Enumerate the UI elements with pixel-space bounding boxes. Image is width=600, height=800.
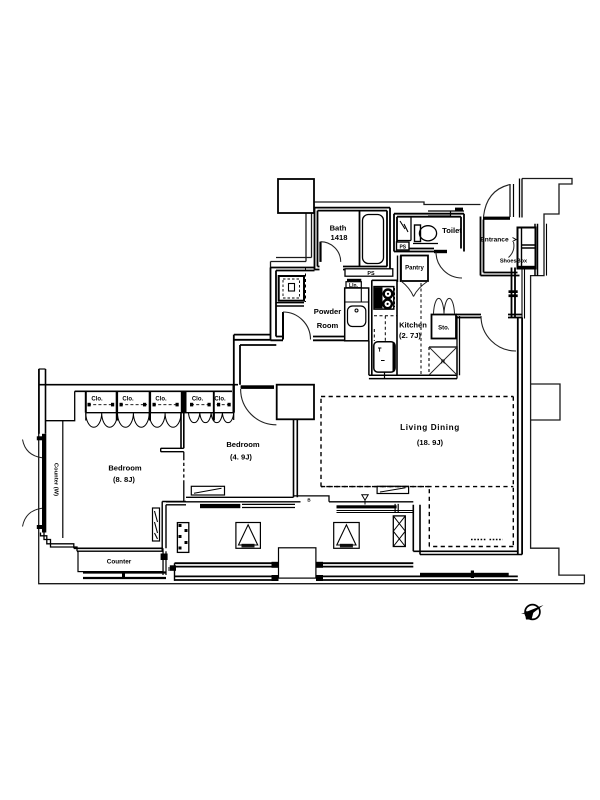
svg-text:Counter (W): Counter (W): [53, 463, 59, 496]
svg-text:Clo.: Clo.: [91, 397, 103, 403]
svg-text:Sto.: Sto.: [438, 326, 450, 332]
svg-text:Powder: Powder: [314, 307, 341, 316]
svg-text:(2. 7J): (2. 7J): [399, 331, 421, 340]
svg-text:1418: 1418: [331, 233, 348, 242]
svg-text:PS: PS: [399, 245, 406, 251]
svg-text:ShoesBox: ShoesBox: [500, 259, 528, 265]
svg-text:Clo.: Clo.: [192, 397, 204, 403]
svg-text:Kitchen: Kitchen: [399, 321, 427, 330]
svg-text:(8. 8J): (8. 8J): [113, 475, 135, 484]
svg-text:(18. 9J): (18. 9J): [417, 438, 444, 447]
svg-text:R: R: [441, 360, 445, 366]
svg-text:Room: Room: [317, 321, 339, 330]
svg-text:Entrance: Entrance: [480, 237, 509, 244]
svg-text:Bath: Bath: [330, 224, 347, 233]
svg-text:Clo.: Clo.: [214, 397, 226, 403]
svg-text:PS: PS: [367, 271, 375, 277]
svg-text:Toilet: Toilet: [442, 226, 462, 235]
svg-text:(4. 9J): (4. 9J): [230, 453, 252, 462]
svg-text:Living Dining: Living Dining: [400, 423, 460, 432]
svg-text:Bedroom: Bedroom: [226, 440, 260, 449]
svg-text:Counter: Counter: [107, 559, 132, 566]
svg-text:Pantry: Pantry: [405, 266, 424, 272]
svg-text:Bedroom: Bedroom: [108, 464, 142, 473]
svg-text:Clo.: Clo.: [155, 397, 167, 403]
svg-text:Clo.: Clo.: [122, 397, 134, 403]
